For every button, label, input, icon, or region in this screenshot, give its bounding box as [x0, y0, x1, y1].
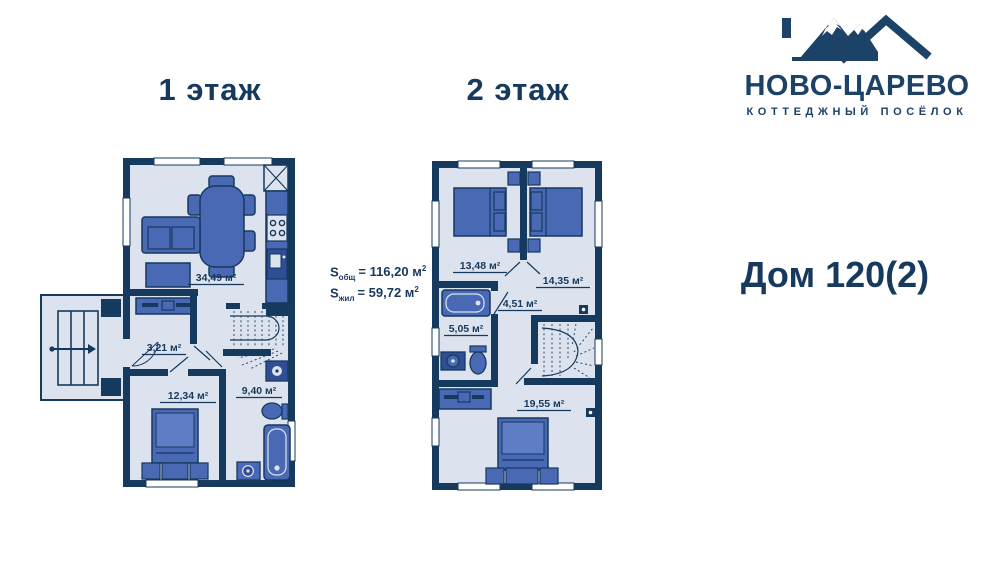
- floor2-bath-label: 5,05 м²: [449, 323, 484, 335]
- washing-machine-icon-floor1: [237, 462, 260, 480]
- bathroom-sink-icon-floor2: [441, 352, 465, 370]
- house-title: Дом 120(2): [700, 254, 970, 296]
- bed-icon-floor1: [142, 409, 208, 479]
- area-living: Sжил= 59,72 м2: [330, 284, 426, 305]
- coffee-table-icon: [146, 263, 190, 287]
- floor2-heading: 2 этаж: [418, 72, 618, 108]
- toilet-icon-floor1: [262, 403, 288, 419]
- stove-icon: [267, 215, 287, 241]
- floor1-living-area-label: 34,49 м²: [196, 272, 237, 284]
- logo-subtitle: КОТТЕДЖНЫЙ ПОСЁЛОК: [722, 106, 992, 118]
- floor2-plan: 13,48 м² 14,35 м² 4,51 м² 5,05 м²: [428, 156, 608, 496]
- kitchen-sink-icon: [267, 249, 287, 279]
- logo: НОВО-ЦАРЕВО КОТТЕДЖНЫЙ ПОСЁЛОК: [722, 12, 992, 118]
- area-summary: Sобщ= 116,20 м2 Sжил= 59,72 м2: [330, 263, 426, 304]
- bathtub-icon-floor2: [442, 290, 490, 316]
- floor1-heading: 1 этаж: [110, 72, 310, 108]
- bathtub-icon-floor1: [264, 425, 290, 480]
- sofa-icon: [142, 217, 200, 253]
- toilet-icon-floor2: [470, 346, 486, 374]
- floor1-bedroom-area-label: 12,34 м²: [168, 390, 209, 402]
- area-total: Sобщ= 116,20 м2: [330, 263, 426, 284]
- kitchen-counter: [264, 165, 288, 316]
- floor2-bedroom-big-label: 19,55 м²: [524, 398, 565, 410]
- floor2-hall-label: 4,51 м²: [503, 298, 538, 310]
- floor2-bedroom-left-label: 13,48 м²: [460, 260, 501, 272]
- mountains-roof-icon: [782, 12, 932, 64]
- logo-title: НОВО-ЦАРЕВО: [722, 70, 992, 103]
- wall-mark-icon: [586, 408, 595, 417]
- floorplan-sheet: 1 этаж 2 этаж Дом 120(2) Sобщ= 116,20 м2…: [0, 0, 1000, 562]
- floor2-bedroom-right-label: 14,35 м²: [543, 275, 584, 287]
- dresser-icon-floor2: [439, 389, 491, 409]
- bathroom-sink-icon-floor1: [266, 361, 288, 381]
- floor1-plan: 34,49 м² 3,21 м² 12,34 м²: [38, 153, 300, 495]
- floor1-bath-area-label: 9,40 м²: [242, 385, 277, 397]
- sideboard-icon: [136, 298, 194, 314]
- entrance-porch: [41, 295, 124, 400]
